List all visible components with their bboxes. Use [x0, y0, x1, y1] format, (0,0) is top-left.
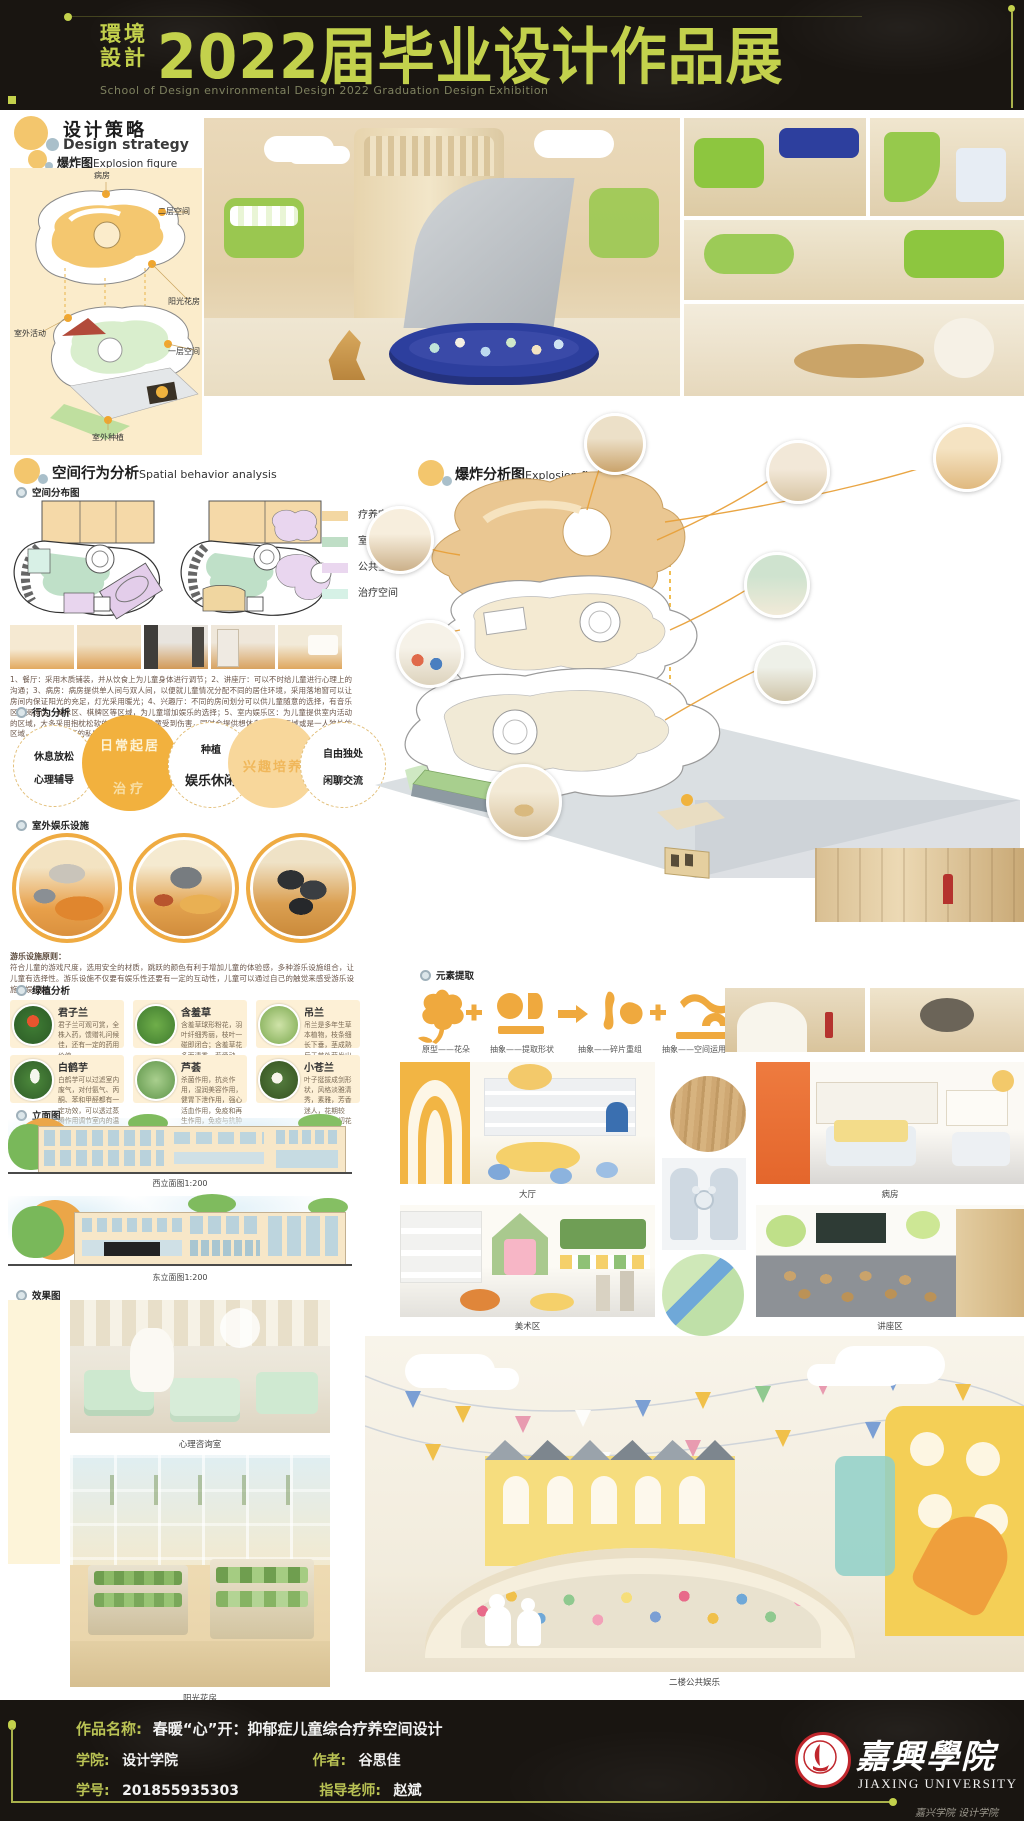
- college-value: 设计学院: [122, 1753, 178, 1769]
- plant-photo-hanxiucao: [135, 1004, 177, 1046]
- render-thumb-3: [684, 220, 1024, 300]
- dept-line2: 設計: [100, 46, 148, 70]
- header-right-line: [1011, 12, 1013, 108]
- sid-value: 201855935303: [122, 1783, 239, 1799]
- sp-circle2: [38, 474, 48, 484]
- plant-photo-xiaocanglan: [258, 1059, 300, 1101]
- ds-circle-small: [46, 138, 59, 151]
- callout-photo-1: [584, 413, 646, 475]
- lecture-caption: 讲座区: [756, 1320, 1024, 1332]
- plant-name: 吊兰: [304, 1008, 324, 1019]
- work-value: 春暖“心”开：抑郁症儿童综合疗养空间设计: [153, 1720, 443, 1738]
- plan-thumb-5: [278, 625, 342, 669]
- plant-name: 小苍兰: [304, 1063, 334, 1074]
- render-sun-room: [70, 1455, 330, 1687]
- plant-photo-diaolan: [258, 1004, 300, 1046]
- dept-name: 環境 設計: [100, 22, 148, 70]
- render-lecture-area: [756, 1205, 1024, 1317]
- render-ward: [756, 1062, 1024, 1184]
- footer-watermark: 嘉兴学院 设计学院: [915, 1804, 998, 1819]
- explosion-panel: 病房 二层空间 阳光花房 室外活动 一层空间 室外种植: [10, 168, 202, 455]
- explosion-label-outdoor: 室外活动: [14, 328, 46, 339]
- explosion-label-floor1: 一层空间: [168, 346, 200, 357]
- sp-title-cn: 空间行为分析: [52, 466, 139, 482]
- plant-name: 君子兰: [58, 1008, 88, 1019]
- callout-photo-4: [366, 506, 434, 574]
- plan-thumb-3: [144, 625, 208, 669]
- footer-work-row: 作品名称: 春暖“心”开：抑郁症儿童综合疗养空间设计: [76, 1718, 443, 1739]
- bc-daily-1: 日常起居: [82, 735, 178, 754]
- explosion-label-ward: 病房: [94, 170, 110, 181]
- plant-name: 芦荟: [181, 1063, 201, 1074]
- sp-title: 空间行为分析Spatial behavior analysis: [52, 462, 277, 483]
- spatial-description: 1、餐厅：采用木质铺装，并从饮食上为儿童身体进行调节；2、讲座厅：可以不时给儿童…: [10, 675, 352, 709]
- plan-thumb-1: [10, 625, 74, 669]
- render-thumb-2: [870, 118, 1024, 216]
- outdoor-label: 室外娱乐设施: [32, 818, 89, 832]
- work-label: 作品名称:: [76, 1720, 142, 1738]
- callout-photo-3: [933, 424, 1001, 492]
- advisor-label: 指导老师:: [319, 1783, 381, 1799]
- sp-circle: [14, 458, 40, 484]
- footer-left-dot-top: [8, 1720, 16, 1728]
- render-lobby: [400, 1062, 655, 1184]
- plant-text: 君子兰 君子兰可观可赏，全株入药，馈赠礼问候佳，还有一定的药用价值: [58, 1001, 122, 1061]
- plan-thumb-2: [77, 625, 141, 669]
- outdoor-bullet: [16, 820, 27, 831]
- explosion-label-planting: 室外种植: [92, 432, 124, 443]
- author-label: 作者:: [313, 1753, 347, 1769]
- elements-bullet: [420, 970, 431, 981]
- plant-name: 含羞草: [181, 1008, 211, 1019]
- bc-daily-2: 治疗: [82, 778, 178, 797]
- render-art-area: [400, 1205, 655, 1317]
- elements-label: 元素提取: [436, 968, 474, 982]
- elevation-east: [8, 1196, 352, 1268]
- plant-photo-junzilan: [12, 1004, 54, 1046]
- element-glyphs: [418, 988, 748, 1046]
- render-playground: [365, 1336, 1024, 1672]
- plan-thumb-4: [211, 625, 275, 669]
- render-thumb-4: [684, 304, 1024, 396]
- outdoor-circle-3: [246, 833, 356, 943]
- render-counsel-room: [70, 1300, 330, 1433]
- plants-bullet: [16, 985, 27, 996]
- footer-bottom-dot: [889, 1798, 897, 1806]
- legend-swatch-therapy: [322, 511, 348, 521]
- floor-plan-1: [8, 497, 168, 622]
- playground-caption: 二楼公共娱乐: [365, 1676, 1024, 1688]
- behavior-circle-daily: 日常起居 治疗: [82, 715, 178, 811]
- poster: 環境 設計 2022届毕业设计作品展 School of Design envi…: [0, 0, 1024, 1821]
- left-accent-strip: [8, 1300, 60, 1564]
- behavior-label: 行为分析: [32, 705, 70, 719]
- behavior-bullet: [16, 707, 27, 718]
- elevation-west: [8, 1118, 352, 1176]
- footer-bottom-line: [11, 1801, 891, 1803]
- bear-door-panel: [662, 1158, 746, 1250]
- plants-label: 绿植分析: [32, 983, 70, 997]
- university-name-en: JIAXING UNIVERSITY: [858, 1776, 1018, 1792]
- callout-photo-5: [396, 620, 464, 688]
- callout-photo-7: [754, 642, 816, 704]
- element-step-3: 抽象——碎片重组: [578, 1044, 642, 1055]
- wood-material-circle: [670, 1076, 746, 1152]
- render-oval-room: [870, 988, 1024, 1052]
- outdoor-circle-2: [129, 833, 239, 943]
- element-step-1: 原型——花朵: [422, 1044, 470, 1055]
- art-caption: 美术区: [400, 1320, 655, 1332]
- ds-title-en: Design strategy: [63, 137, 189, 153]
- header-right-dot: [1008, 5, 1015, 12]
- footer-college-row: 学院: 设计学院 作者: 谷思佳: [76, 1750, 401, 1770]
- lobby-caption: 大厅: [400, 1188, 655, 1200]
- callout-photo-8: [486, 764, 562, 840]
- dept-line1: 環境: [100, 22, 148, 46]
- main-render-playroom: [204, 118, 680, 396]
- principle-title: 游乐设施原则：: [10, 952, 66, 961]
- floor-plan-2: [175, 497, 335, 622]
- footer-sid-row: 学号: 201855935303 指导老师: 赵斌: [76, 1780, 421, 1800]
- ds-circle-big: [14, 116, 48, 150]
- elevation-west-caption: 西立面图1:200: [8, 1178, 352, 1189]
- counsel-caption: 心理咨询室: [70, 1438, 330, 1450]
- author-value: 谷思佳: [359, 1753, 401, 1769]
- university-name-cn: 嘉興學院: [856, 1730, 996, 1778]
- plant-name: 白鹤芋: [58, 1063, 88, 1074]
- sp-title-en: Spatial behavior analysis: [139, 468, 277, 481]
- explosion-label-floor2: 二层空间: [158, 206, 190, 217]
- header-bar: 環境 設計 2022届毕业设计作品展 School of Design envi…: [0, 0, 1024, 110]
- render-thumb-1: [684, 118, 866, 216]
- render-corridor: [815, 848, 1024, 922]
- legend-swatch-treat: [322, 589, 348, 599]
- sid-label: 学号:: [76, 1783, 110, 1799]
- legend-swatch-outdoor: [322, 537, 348, 547]
- globe-material-circle: [662, 1254, 744, 1336]
- plant-photo-baiheyu: [12, 1059, 54, 1101]
- element-step-2: 抽象——提取形状: [490, 1044, 554, 1055]
- legend-swatch-public: [322, 563, 348, 573]
- callout-photo-2: [766, 440, 830, 504]
- elevation-east-caption: 东立面图1:200: [8, 1272, 352, 1283]
- university-logo: [795, 1732, 851, 1788]
- element-step-4: 抽象——空间运用: [662, 1044, 726, 1055]
- plant-photo-luhui: [135, 1059, 177, 1101]
- page-subtitle: School of Design environmental Design 20…: [100, 84, 549, 97]
- explosion-label-sunroom: 阳光花房: [168, 296, 200, 307]
- header-notch: [8, 96, 16, 104]
- advisor-value: 赵斌: [393, 1783, 421, 1799]
- explosion-analysis-drawing: [365, 470, 1024, 880]
- outdoor-circle-1: [12, 833, 122, 943]
- callout-photo-6: [744, 552, 810, 618]
- footer-left-line: [11, 1728, 13, 1802]
- ward-caption: 病房: [756, 1188, 1024, 1200]
- render-cave-room: [725, 988, 865, 1052]
- college-label: 学院:: [76, 1753, 110, 1769]
- header-left-dot: [64, 13, 72, 21]
